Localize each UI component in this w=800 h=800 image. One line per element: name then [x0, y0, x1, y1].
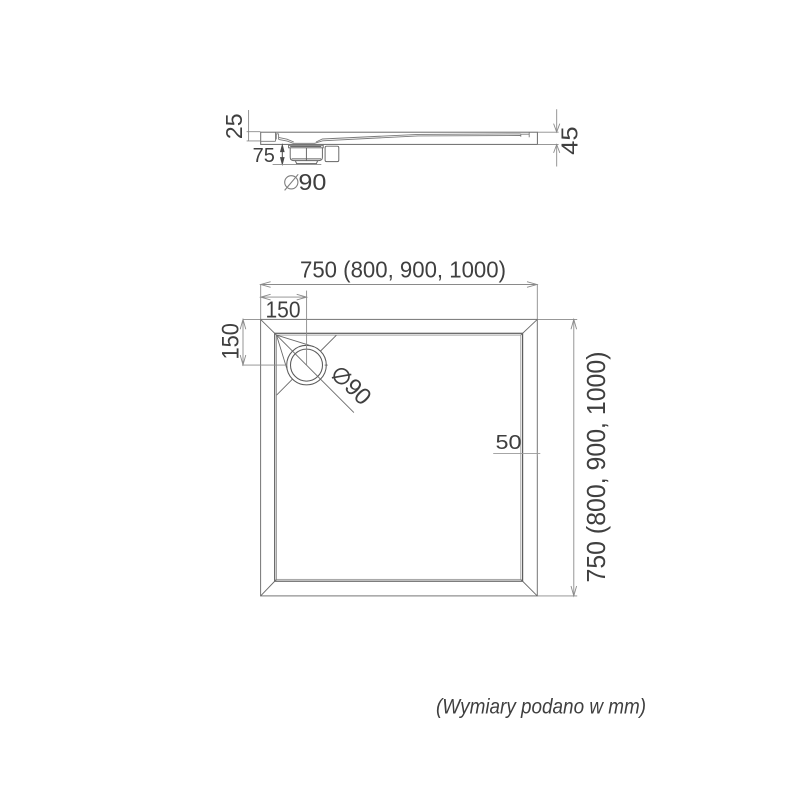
svg-text:45: 45 [556, 126, 582, 155]
svg-text:90: 90 [298, 169, 326, 195]
svg-text:25: 25 [221, 114, 247, 140]
svg-text:150: 150 [266, 296, 301, 322]
svg-text:50: 50 [496, 432, 522, 454]
svg-text:750 (800, 900, 1000): 750 (800, 900, 1000) [300, 257, 506, 283]
svg-text:150: 150 [217, 323, 244, 360]
svg-text:75: 75 [253, 145, 275, 167]
svg-text:750 (800, 900, 1000): 750 (800, 900, 1000) [583, 352, 611, 583]
svg-text:(Wymiary podano w mm): (Wymiary podano w mm) [436, 696, 646, 719]
